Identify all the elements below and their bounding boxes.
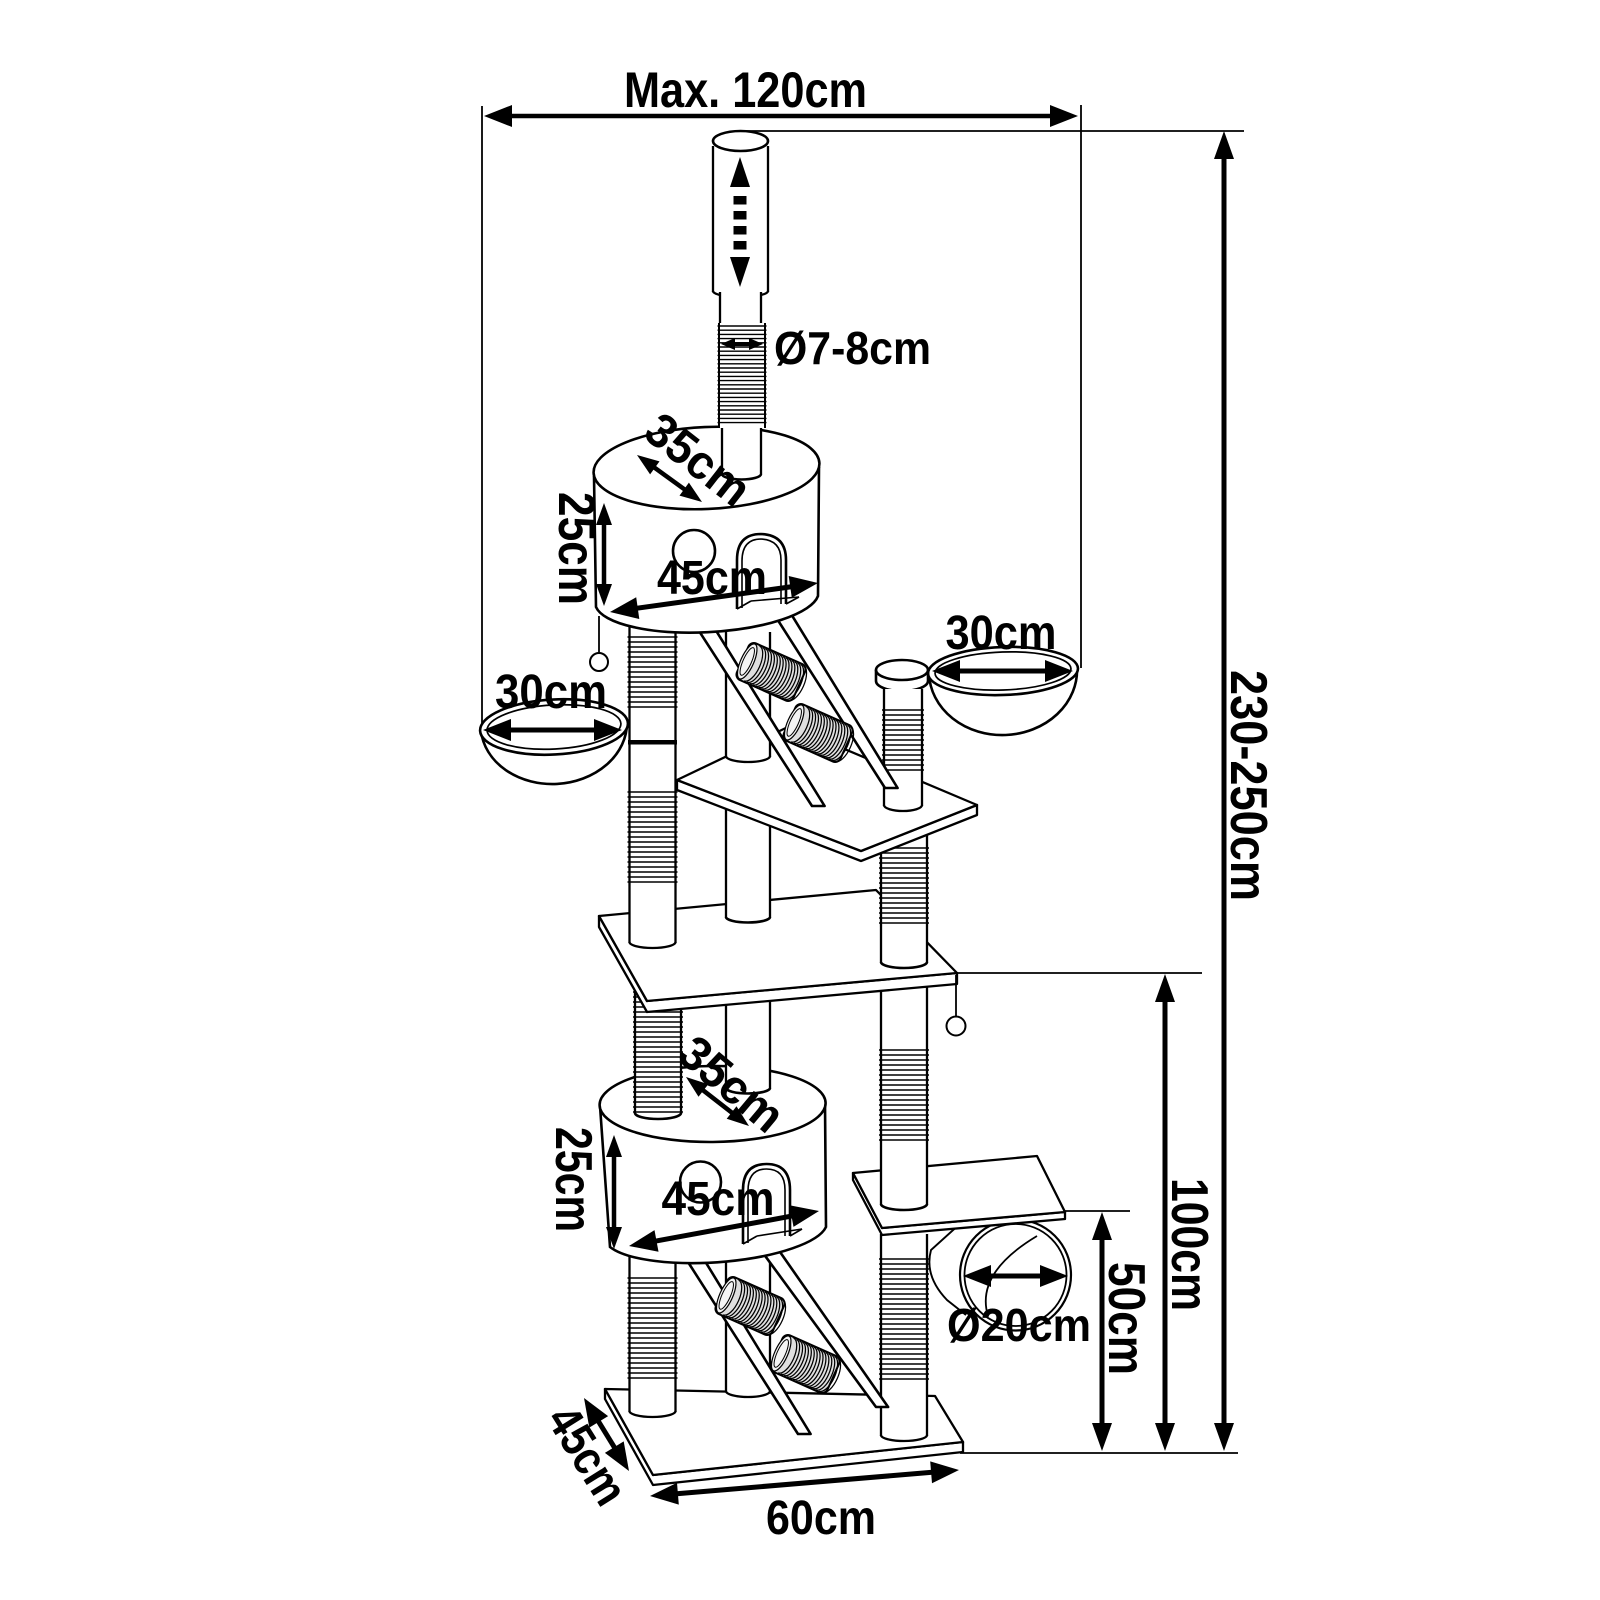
svg-text:45cm: 45cm [662, 1173, 775, 1226]
svg-text:100cm: 100cm [1160, 1178, 1218, 1311]
svg-text:50cm: 50cm [1097, 1262, 1155, 1375]
svg-text:30cm: 30cm [946, 607, 1057, 660]
svg-text:Ø20cm: Ø20cm [947, 1299, 1091, 1351]
svg-text:60cm: 60cm [766, 1492, 876, 1545]
svg-text:30cm: 30cm [495, 666, 607, 719]
svg-text:25cm: 25cm [544, 1127, 602, 1232]
svg-text:Max. 120cm: Max. 120cm [624, 62, 867, 118]
svg-text:Ø7-8cm: Ø7-8cm [774, 322, 931, 374]
svg-text:25cm: 25cm [547, 492, 605, 605]
svg-text:230-250cm: 230-250cm [1219, 670, 1277, 901]
